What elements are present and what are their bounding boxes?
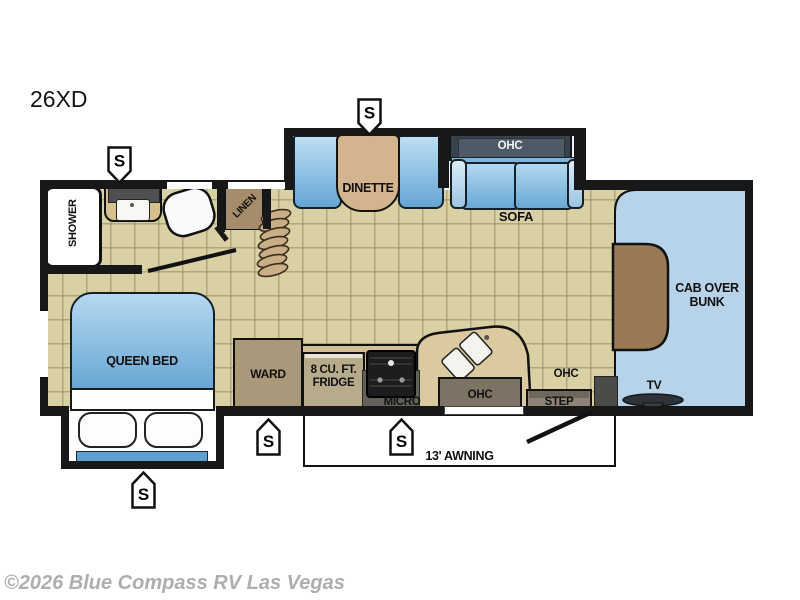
s-marker-queen-bed: S <box>131 471 156 509</box>
s-marker-bath-sink: S <box>107 146 132 184</box>
s-marker-dinette: S <box>357 98 382 136</box>
svg-text:S: S <box>114 152 125 171</box>
s-marker-wardrobe: S <box>256 418 281 456</box>
s-marker-microwave: S <box>389 418 414 456</box>
svg-text:S: S <box>364 104 375 123</box>
svg-text:S: S <box>396 432 407 451</box>
svg-text:S: S <box>263 432 274 451</box>
floorplan-page: { "title": { "model": "26XD" }, "waterma… <box>0 0 800 600</box>
entry-door-swing <box>0 0 800 600</box>
svg-text:S: S <box>138 485 149 504</box>
